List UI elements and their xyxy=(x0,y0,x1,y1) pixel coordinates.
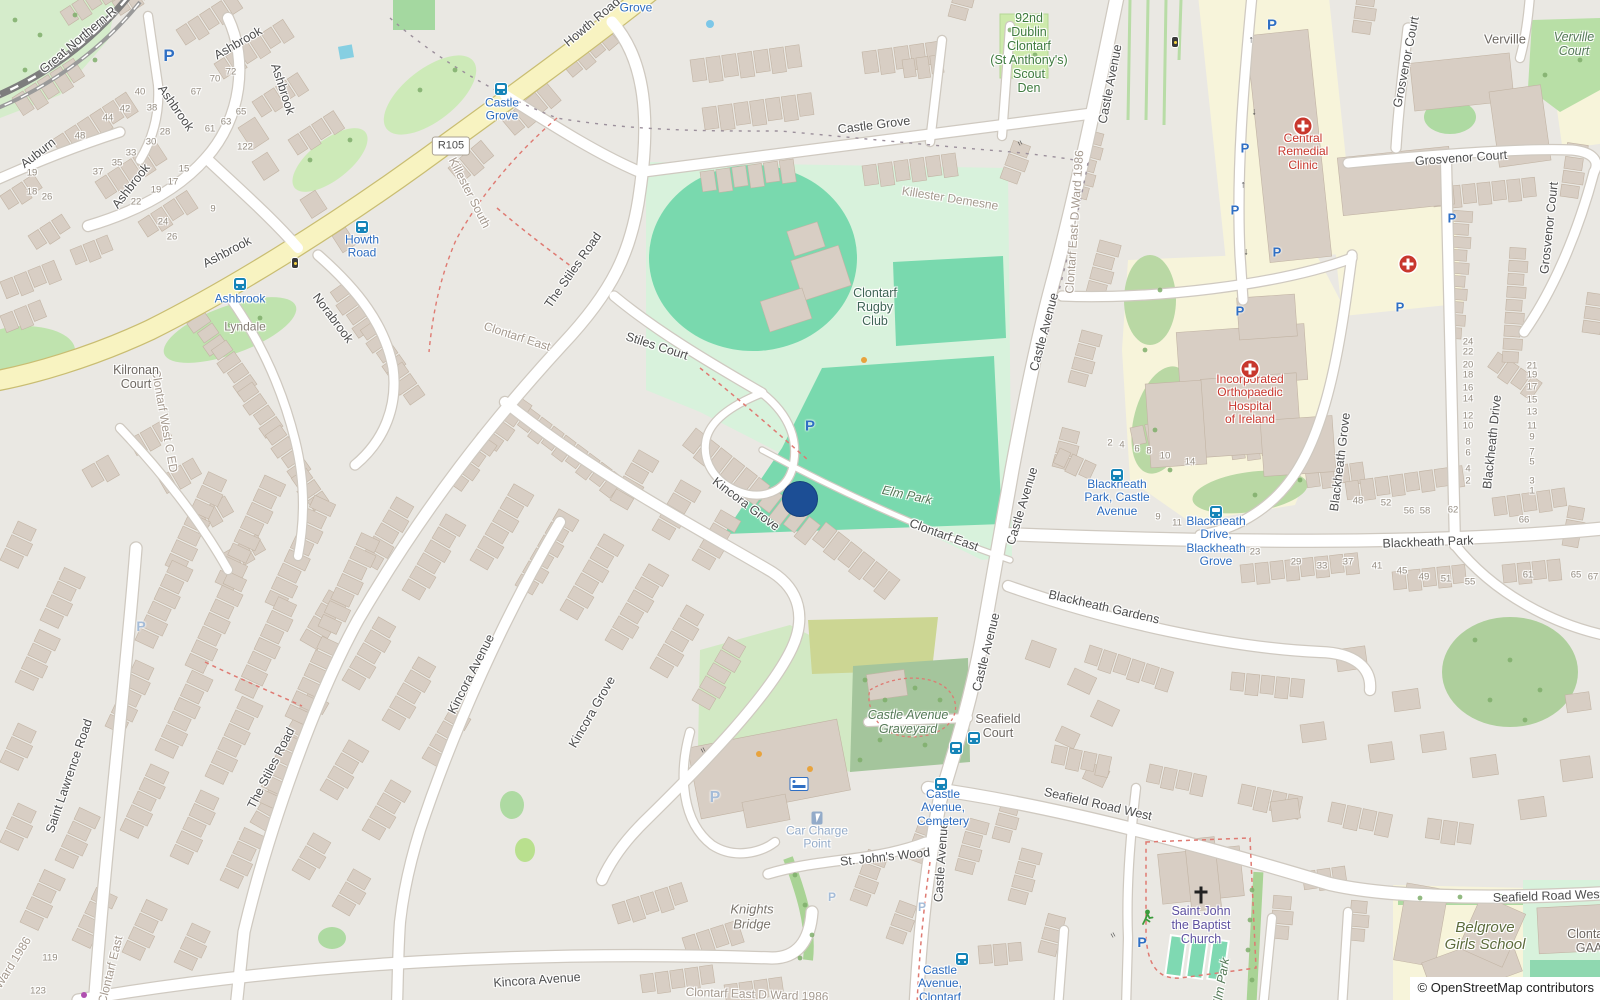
street-label: Grosvenor Court xyxy=(1537,181,1561,274)
house-number-label: 2 xyxy=(1465,477,1470,488)
house-number-label: 55 xyxy=(1465,578,1476,589)
poi-label: ClontarfRugbyClub xyxy=(853,286,897,328)
bus-stop-label: BlackheathDrive,BlackheathGrove xyxy=(1186,515,1245,569)
bus-stop-icon xyxy=(935,778,947,790)
house-number-label: 51 xyxy=(1441,575,1452,586)
oneway-arrow-icon: ↓ xyxy=(1244,247,1249,258)
house-number-label: 48 xyxy=(1353,497,1364,508)
gate-icon: = xyxy=(1107,930,1118,940)
street-label: Blackheath Gardens xyxy=(1047,587,1161,626)
street-label: Castle Grove xyxy=(837,114,911,137)
street-label: Ashbrook xyxy=(268,62,298,117)
medical-cross-icon xyxy=(1242,361,1259,378)
poi-label: IncorporatedOrthopaedicHospitalof Irelan… xyxy=(1216,373,1283,427)
church-cross-icon xyxy=(1194,887,1209,904)
oneway-arrow-icon: ↑ xyxy=(1241,180,1246,191)
house-number-label: 33 xyxy=(126,149,137,160)
map-dot xyxy=(756,751,762,757)
poi-label: Verville xyxy=(1484,33,1526,48)
parking-icon: P xyxy=(1236,304,1245,319)
poi-label: KilronanCourt xyxy=(113,363,159,391)
house-number-label: 17 xyxy=(1527,383,1538,394)
house-number-label: 40 xyxy=(135,88,146,99)
street-label: Great Northern R xyxy=(37,4,119,76)
house-number-label: 5 xyxy=(1529,458,1534,469)
house-number-label: 72 xyxy=(226,68,237,79)
route-ref-badge: R105 xyxy=(432,137,470,156)
boundary-label: Clontarf East-D Ward 1986 xyxy=(1063,150,1086,294)
parking-icon: P xyxy=(1267,17,1277,34)
bus-stop-icon xyxy=(956,953,968,965)
bus-stop-icon xyxy=(234,278,246,290)
house-number-label: 29 xyxy=(1291,558,1302,569)
house-number-label: 22 xyxy=(1463,348,1474,359)
house-number-label: 67 xyxy=(191,88,202,99)
house-number-label: 4 xyxy=(1119,441,1124,452)
parking-icon: P xyxy=(710,789,721,807)
bus-stop-label: CastleAvenue,Clontarf xyxy=(918,964,962,1000)
bus-stop-icon xyxy=(1111,469,1123,481)
parking-icon: P xyxy=(805,418,815,435)
boundary-label: Clontarf East xyxy=(96,935,126,1000)
map-dot xyxy=(706,20,714,28)
poi-label: Lyndale xyxy=(224,320,266,333)
house-number-label: 9 xyxy=(1155,513,1160,524)
house-number-label: 41 xyxy=(1372,562,1383,573)
location-marker[interactable] xyxy=(782,481,818,517)
house-number-label: 48 xyxy=(75,132,86,143)
house-number-label: 28 xyxy=(160,128,171,139)
house-number-label: 19 xyxy=(1527,371,1538,382)
house-number-label: 8 xyxy=(1146,447,1151,458)
poi-label: Saint Johnthe BaptistChurch xyxy=(1171,904,1230,946)
house-number-label: 67 xyxy=(1588,573,1599,584)
parking-icon: P xyxy=(828,890,836,904)
house-number-label: 26 xyxy=(42,193,53,204)
house-number-label: 6 xyxy=(1465,449,1470,460)
map-attribution[interactable]: © OpenStreetMap contributors xyxy=(1410,977,1600,1000)
poi-label: SeafieldCourt xyxy=(975,712,1020,740)
street-label: The Stiles Road xyxy=(542,230,604,311)
house-number-label: 23 xyxy=(1250,548,1261,559)
bus-stop-label: Grove xyxy=(620,1,653,14)
house-number-label: 14 xyxy=(1185,458,1196,469)
area-label: Elm Park xyxy=(881,483,934,507)
water-feature xyxy=(338,44,354,59)
parking-icon: P xyxy=(1448,211,1457,226)
street-label: Kincora Avenue xyxy=(445,632,497,716)
house-number-label: 2 xyxy=(1107,439,1112,450)
poi-label: ClontarfGAA xyxy=(1567,927,1600,955)
street-label: Seafield Road West xyxy=(1493,887,1600,905)
street-label: Ashbrook xyxy=(200,233,253,270)
bus-stop-icon xyxy=(1210,506,1222,518)
bus-stop-label: Ashbrook xyxy=(215,292,266,305)
house-number-label: 56 xyxy=(1404,507,1415,518)
car-charging-icon xyxy=(812,812,823,825)
house-number-label: 17 xyxy=(168,178,179,189)
street-label: Blackheath Park xyxy=(1382,533,1473,550)
house-number-label: 65 xyxy=(236,108,247,119)
house-number-label: 52 xyxy=(1381,499,1392,510)
street-label: Ashbrook xyxy=(212,24,265,63)
house-number-label: 9 xyxy=(1529,433,1534,444)
parking-icon: P xyxy=(1231,203,1240,218)
house-number-label: 19 xyxy=(27,169,38,180)
house-number-label: 58 xyxy=(1420,507,1431,518)
street-label: Kincora Grove xyxy=(710,474,782,533)
street-label: The Stiles Road xyxy=(245,725,298,811)
parking-icon: P xyxy=(1241,141,1250,156)
parking-icon: P xyxy=(1137,934,1146,950)
bus-stop-icon xyxy=(495,83,507,95)
house-number-label: 65 xyxy=(1571,571,1582,582)
house-number-label: 63 xyxy=(221,118,232,129)
house-number-label: 1 xyxy=(1529,487,1534,498)
bus-stop-icon xyxy=(968,732,980,744)
map-dot xyxy=(807,766,813,772)
house-number-label: 6 xyxy=(1134,445,1139,456)
area-label: Elm Park xyxy=(1210,957,1233,1000)
gate-icon: = xyxy=(697,745,708,755)
house-number-label: 24 xyxy=(158,218,169,229)
street-label: Castle Avenue xyxy=(1095,43,1124,125)
house-number-label: 14 xyxy=(1463,395,1474,406)
area-label: KnightsBridge xyxy=(730,902,773,931)
area-label: Castle AvenueGraveyard xyxy=(868,708,949,736)
map-dot xyxy=(81,992,87,998)
house-number-label: 11 xyxy=(1172,519,1182,530)
bus-stop-icon xyxy=(356,221,368,233)
house-number-label: 122 xyxy=(237,143,253,154)
house-number-label: 15 xyxy=(1527,396,1538,407)
street-label: Castle Avenue xyxy=(1027,291,1061,372)
street-label: Blackheath Grove xyxy=(1327,412,1353,512)
house-number-label: 26 xyxy=(167,233,178,244)
street-label: Grosvenor Court xyxy=(1414,148,1507,168)
street-label: Castle Avenue xyxy=(931,821,951,902)
poi-label: Car ChargePoint xyxy=(786,825,848,852)
house-number-label: 30 xyxy=(146,138,157,149)
street-label: Kincora Grove xyxy=(566,674,618,750)
house-number-label: 62 xyxy=(1448,506,1459,517)
house-number-label: 44 xyxy=(103,114,114,125)
house-number-label: 123 xyxy=(30,987,46,998)
street-label: Saint Lawrence Road xyxy=(43,717,95,835)
bus-stop-icon xyxy=(950,742,962,754)
boundary-label: Killester Demesne xyxy=(901,185,999,214)
street-label: Stiles Court xyxy=(624,329,690,362)
house-number-label: 35 xyxy=(112,159,123,170)
traffic-signal-icon xyxy=(1172,37,1178,47)
parking-icon: P xyxy=(1273,245,1282,260)
house-number-label: 4 xyxy=(1465,465,1470,476)
runner-icon xyxy=(1140,909,1155,931)
house-number-label: 18 xyxy=(27,188,38,199)
house-number-label: 66 xyxy=(1519,516,1530,527)
house-number-label: 19 xyxy=(151,186,162,197)
parking-icon: P xyxy=(163,46,174,66)
parking-icon: P xyxy=(1396,300,1405,315)
house-number-label: 18 xyxy=(1463,371,1474,382)
house-number-label: 22 xyxy=(131,198,142,209)
parking-icon: P xyxy=(918,900,926,914)
bus-stop-label: HowthRoad xyxy=(345,234,379,261)
house-number-label: 13 xyxy=(1527,408,1538,419)
street-label: St. John's Wood xyxy=(839,845,930,868)
house-number-label: 119 xyxy=(42,954,57,965)
house-number-label: 15 xyxy=(179,165,190,176)
house-number-label: 70 xyxy=(210,75,221,86)
street-label: Kincora Avenue xyxy=(493,970,581,990)
boundary-label: Clontarf East xyxy=(482,320,552,354)
street-label: Clontarf East xyxy=(908,516,981,554)
street-label: Castle Avenue xyxy=(969,611,1002,692)
house-number-label: 37 xyxy=(93,168,104,179)
bus-stop-label: BlackheathPark, CastleAvenue xyxy=(1084,478,1149,518)
house-number-label: 33 xyxy=(1317,562,1328,573)
house-number-label: 49 xyxy=(1419,573,1430,584)
house-number-label: 38 xyxy=(147,104,158,115)
medical-cross-icon xyxy=(1400,256,1417,273)
oneway-arrow-icon: ↓ xyxy=(1252,107,1257,118)
house-number-label: 10 xyxy=(1463,422,1474,433)
hotel-bed-icon xyxy=(790,777,809,791)
house-number-label: 37 xyxy=(1343,558,1354,569)
poi-label: CentralRemedialClinic xyxy=(1278,132,1329,172)
street-label: Norabrook xyxy=(310,290,356,345)
bus-stop-label: CastleAvenue,Cemetery xyxy=(917,788,969,828)
house-number-label: 9 xyxy=(210,205,215,216)
street-label: Auburn xyxy=(18,135,58,171)
oneway-arrow-icon: ↑ xyxy=(1249,35,1254,46)
house-number-label: 45 xyxy=(1397,567,1408,578)
street-label: Castle Avenue xyxy=(1004,466,1041,547)
map-dot xyxy=(861,357,867,363)
street-label: Blackheath Drive xyxy=(1480,394,1504,489)
medical-cross-icon xyxy=(1295,118,1312,135)
house-number-label: 61 xyxy=(205,125,216,136)
boundary-label: Killester South xyxy=(445,155,492,230)
street-label: Howth Road xyxy=(561,0,623,49)
area-label: VervilleCourt xyxy=(1554,30,1595,58)
house-number-label: 42 xyxy=(120,105,131,116)
poi-label: 92ndDublinClontarf(St Anthony's)ScoutDen xyxy=(990,11,1067,95)
parking-icon: P xyxy=(136,618,145,634)
area-label: BelgroveGirls School xyxy=(1445,920,1526,954)
map-canvas[interactable]: Great Northern RHowth RoadAshbrookAshbro… xyxy=(0,0,1600,1000)
house-number-label: 61 xyxy=(1523,571,1534,582)
gate-icon: = xyxy=(1014,138,1025,148)
boundary-label: Clontarf East D Ward 1986 xyxy=(685,986,828,1000)
bus-stop-label: CastleGrove xyxy=(485,97,519,124)
street-label: Seafield Road West xyxy=(1043,785,1154,823)
house-number-label: 10 xyxy=(1160,452,1171,463)
traffic-signal-icon xyxy=(292,258,298,268)
street-label: Grosvenor Court xyxy=(1390,15,1421,108)
